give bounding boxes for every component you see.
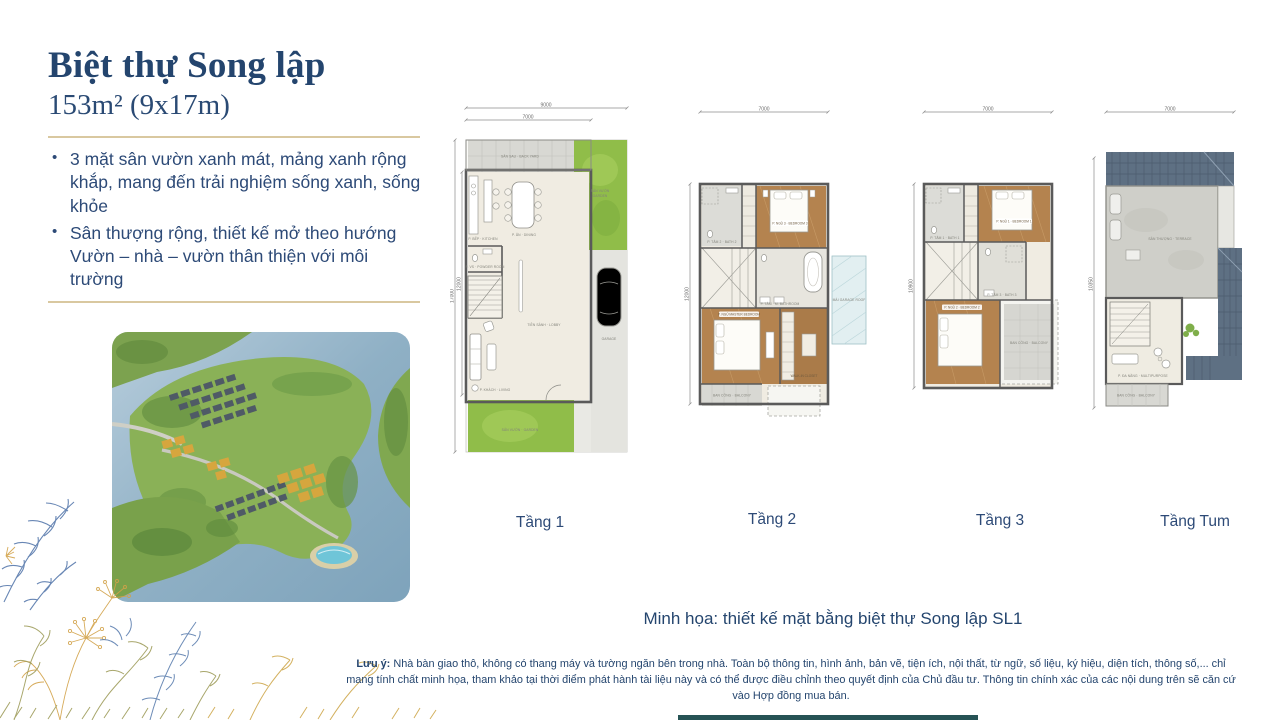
dim-12000: 12000	[685, 287, 691, 301]
floor-label-tang-3: Tầng 3	[960, 512, 1040, 530]
room-lobby: TIỀN SẢNH · LOBBY	[527, 322, 561, 327]
room-garden-front: SÂN VƯỜN · GARDEN	[502, 427, 539, 432]
header: Biệt thự Song lập 153m² (9x17m)	[48, 44, 325, 122]
room-living: P. KHÁCH · LIVING	[480, 388, 511, 392]
dim-7000: 7000	[522, 115, 533, 121]
room-bath2: P. TẮM 2 · BATH 2	[707, 239, 736, 244]
room-powder: P. VS · POWDER ROOM	[466, 265, 505, 269]
divider-bottom	[48, 301, 420, 303]
room-garage: GARAGE	[602, 337, 617, 341]
floor-label-tang-2: Tầng 2	[732, 511, 812, 529]
room-terrace: SÂN THƯỢNG · TERRACE	[1148, 237, 1192, 241]
plan1-stairs	[468, 276, 502, 318]
dim-9000: 9000	[540, 103, 551, 109]
tum-plant	[1183, 324, 1199, 338]
blue-sprig	[100, 618, 200, 720]
room-wic: WALK-IN CLOSET	[791, 374, 818, 378]
dim-7000: 7000	[1164, 107, 1175, 113]
olive-grass	[0, 626, 220, 720]
room-bath3: P. TẮM 3 · BATH 3	[987, 292, 1016, 297]
divider-top	[48, 136, 420, 138]
plan2-body: P. TẮM 2 · BATH 2 P. NGỦ 3 · BEDROOM 3 P…	[700, 184, 866, 416]
room-garden-side-en: GARDEN	[593, 194, 608, 198]
plan1-car	[597, 268, 621, 326]
disclaimer-text: Nhà bàn giao thô, không có thang máy và …	[346, 658, 1236, 702]
room-balcony: BAN CÔNG · BALCONY	[1010, 340, 1049, 345]
floorplan-tang-2: 7000 12000	[684, 100, 869, 445]
floorplan-tang-1: 9000 7000 17000 12000	[450, 100, 645, 468]
floorplan-tang-tum: 7000 10350	[1086, 100, 1261, 435]
room-multipurpose: P. ĐA NĂNG · MULTIPURPOSE	[1118, 374, 1168, 378]
feature-item: Sân thượng rộng, thiết kế mở theo hướng …	[48, 222, 426, 292]
room-bed2: P. NGỦ 2 · BEDROOM 2	[944, 305, 979, 310]
brochure-page: Biệt thự Song lập 153m² (9x17m) 3 mặt sâ…	[0, 0, 1280, 720]
room-balcony: BAN CÔNG · BALCONY	[713, 393, 752, 398]
room-dining: P. ĂN · DINING	[512, 233, 536, 237]
floor-label-tang-tum: Tầng Tum	[1150, 513, 1240, 531]
dim-7000: 7000	[982, 107, 993, 113]
tum-body: SÂN THƯỢNG · TERRACE P. ĐA NĂNG · MULTIP…	[1106, 152, 1242, 406]
dim-10900: 10900	[909, 279, 915, 293]
room-garden-side: SÂN VƯỜN	[591, 188, 610, 193]
room-bed1: P. NGỦ 1 · BEDROOM 1	[996, 219, 1031, 224]
room-bath1: P. TẮM 1 · BATH 1	[930, 235, 959, 240]
floorplan-tang-3: 7000 10900	[908, 100, 1088, 435]
room-kitchen: P. BẾP · KITCHEN	[468, 236, 498, 241]
bottom-accent-bar	[678, 715, 978, 720]
disclaimer-label: Lưu ý:	[356, 658, 390, 670]
illustration-caption: Minh họa: thiết kế mặt bằng biệt thự Son…	[433, 609, 1233, 629]
plan3-body: P. TẮM 1 · BATH 1 P. NGỦ 1 · BEDROOM 1 P…	[924, 184, 1058, 388]
room-masterbath: P. TẮM · M. BATHROOM	[761, 301, 800, 306]
disclaimer-note: Lưu ý: Nhà bàn giao thô, không có thang …	[345, 656, 1237, 704]
plan1-body: SÂN SAU · BACK YARD SÂN VƯỜN GARDEN P. B…	[466, 140, 627, 452]
feature-item: 3 mặt sân vườn xanh mát, mảng xanh rộng …	[48, 148, 426, 218]
dim-17000: 17000	[450, 289, 456, 303]
tum-stairs	[1110, 302, 1150, 346]
dim-10350: 10350	[1089, 277, 1095, 291]
dim-7000: 7000	[758, 107, 769, 113]
room-garage-roof: MÁI GARAGE ROOF	[833, 298, 866, 302]
room-bed3: P. NGỦ 3 · BEDROOM 3	[772, 221, 807, 226]
feature-text: Sân thượng rộng, thiết kế mở theo hướng …	[70, 223, 396, 290]
gold-umbel	[6, 547, 131, 720]
feature-list: 3 mặt sân vườn xanh mát, mảng xanh rộng …	[48, 148, 426, 296]
room-backyard: SÂN SAU · BACK YARD	[501, 155, 540, 159]
room-master: P. NGỦ MASTER BEDROOM	[718, 312, 760, 317]
floor-label-tang-1: Tầng 1	[500, 514, 580, 532]
feature-text: 3 mặt sân vườn xanh mát, mảng xanh rộng …	[70, 149, 420, 216]
page-subtitle: 153m² (9x17m)	[48, 89, 325, 122]
room-balcony: BAN CÔNG · BALCONY	[1117, 393, 1156, 398]
dim-12000: 12000	[457, 277, 463, 291]
blue-fern	[0, 499, 76, 610]
page-title: Biệt thự Song lập	[48, 44, 325, 87]
